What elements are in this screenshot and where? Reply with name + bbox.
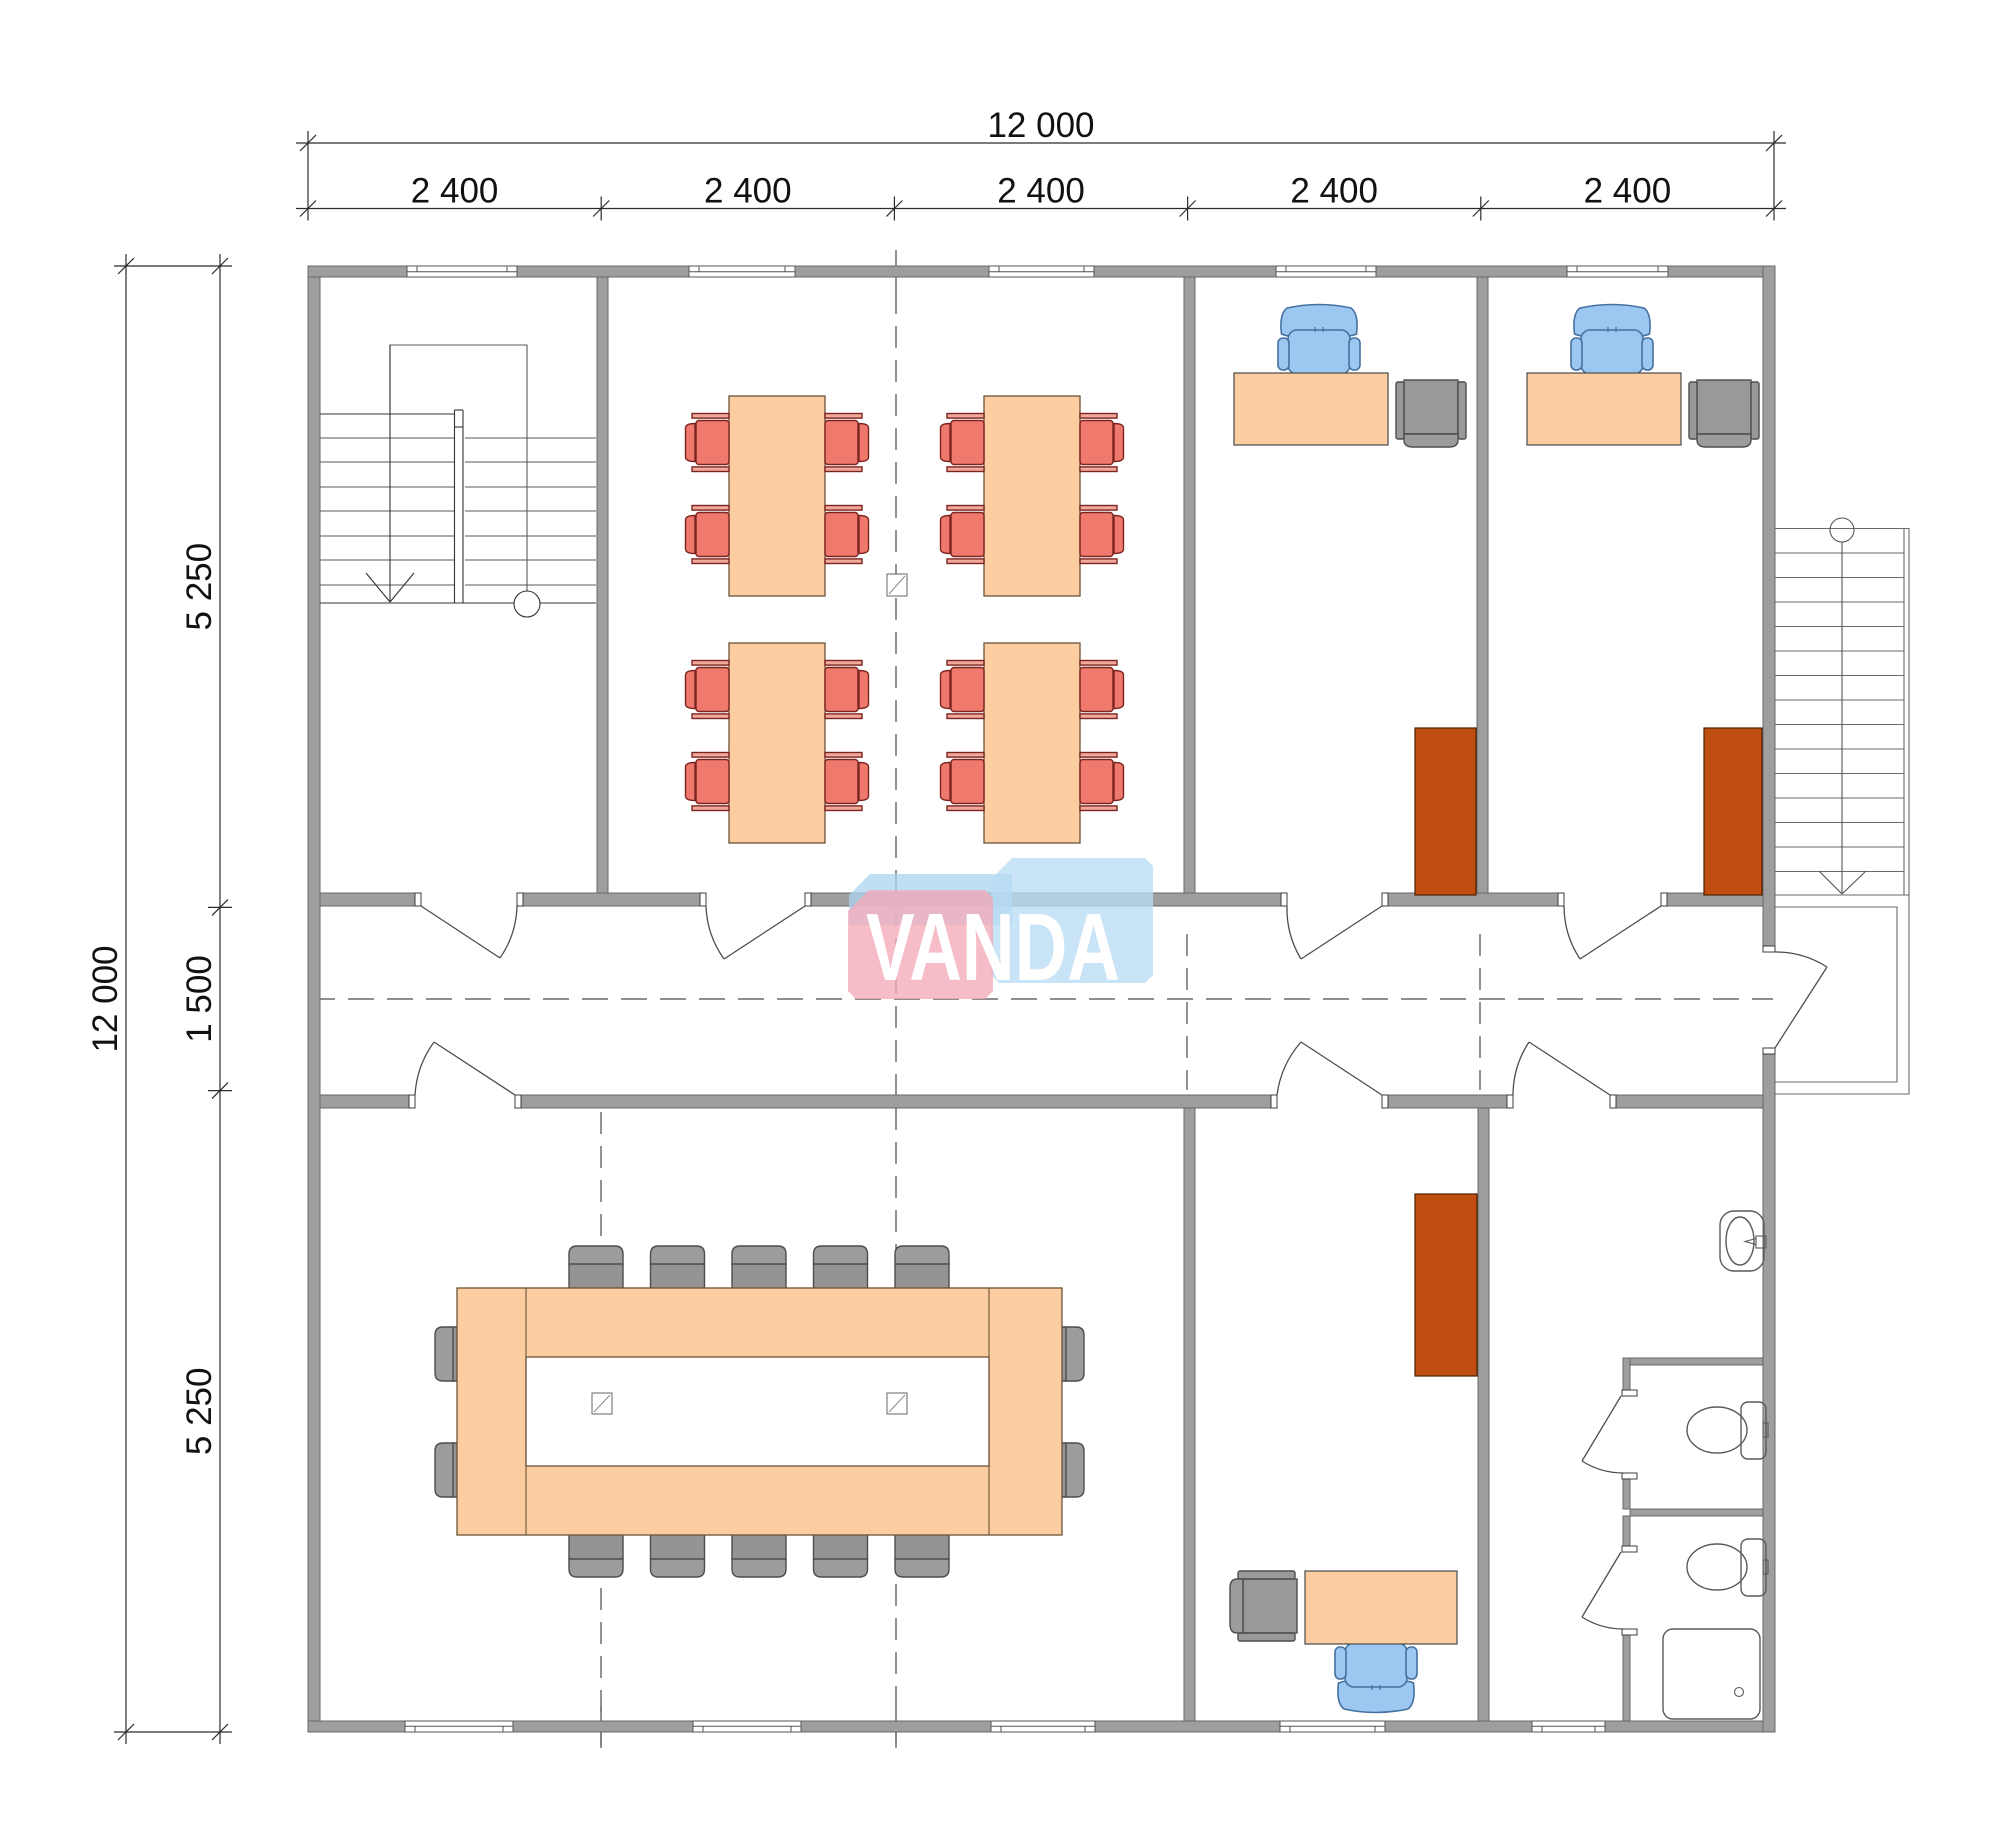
svg-text:2 400: 2 400	[411, 172, 499, 211]
svg-text:2 400: 2 400	[1290, 172, 1378, 211]
svg-text:12 000: 12 000	[86, 945, 125, 1052]
svg-text:2 400: 2 400	[704, 172, 792, 211]
svg-text:VANDA: VANDA	[866, 894, 1120, 1001]
svg-text:5 250: 5 250	[180, 543, 219, 631]
svg-text:5 250: 5 250	[180, 1368, 219, 1456]
svg-text:2 400: 2 400	[1584, 172, 1672, 211]
svg-text:2 400: 2 400	[997, 172, 1085, 211]
svg-text:1 500: 1 500	[180, 955, 219, 1043]
svg-text:12 000: 12 000	[987, 106, 1094, 145]
